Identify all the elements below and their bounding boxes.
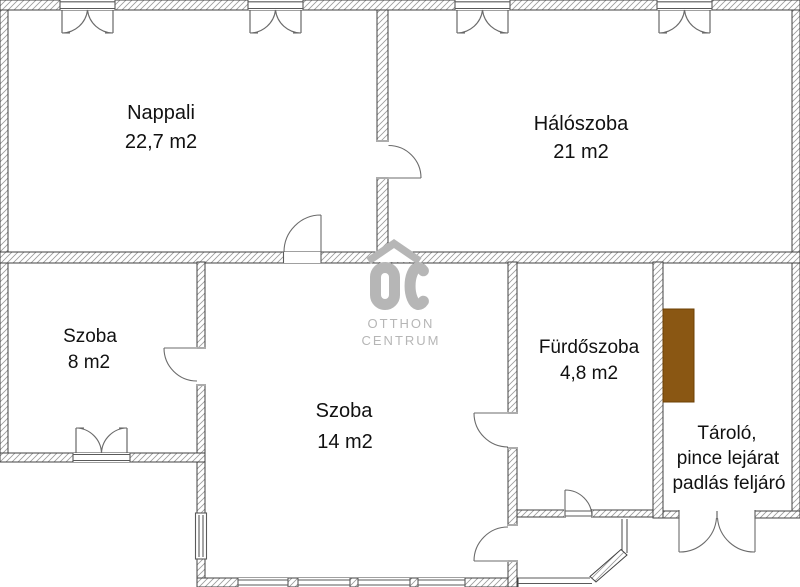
logo-letter-c xyxy=(410,267,423,304)
oc-logo-letters xyxy=(376,267,424,304)
room-area: 21 m2 xyxy=(553,141,609,163)
window-szoba14-bottom-3 xyxy=(358,578,410,587)
opening-furdoszoba-porch-door xyxy=(564,509,593,518)
room-area: 8 m2 xyxy=(68,352,110,373)
floorplan-canvas: OTTHON CENTRUM Nappali 22,7 m2 Hálószoba… xyxy=(0,0,800,587)
room-name-line1: Tároló, xyxy=(697,423,756,444)
porch-right-wall xyxy=(622,519,627,553)
room-label-szoba8: Szoba 8 m2 xyxy=(63,326,117,373)
room-name: Szoba xyxy=(63,326,117,347)
watermark-line1: OTTHON xyxy=(368,316,435,331)
window-haloszoba-1 xyxy=(455,0,510,33)
window-szoba8-bottom xyxy=(73,428,130,462)
porch-chamfer-wall xyxy=(590,550,627,583)
window-haloszoba-2 xyxy=(657,0,712,33)
logo-letter-o xyxy=(376,268,395,305)
room-label-tarolo: Tároló, pince lejárat padlás feljáró xyxy=(672,423,785,494)
opening-haloszoba-door xyxy=(376,140,389,179)
window-szoba14-bottom-1 xyxy=(238,578,288,587)
wall-furdoszoba-tarolo xyxy=(653,262,663,518)
window-nappali-1 xyxy=(60,0,115,33)
room-label-furdoszoba: Fürdőszoba 4,8 m2 xyxy=(539,337,640,384)
porch-entry xyxy=(518,519,627,584)
opening-szoba8-door xyxy=(196,347,206,386)
room-area: 4,8 m2 xyxy=(560,363,618,384)
room-area: 14 m2 xyxy=(317,431,373,453)
porch-bottom-wall xyxy=(518,578,592,584)
window-szoba14-left xyxy=(196,513,207,559)
window-nappali-2 xyxy=(248,0,303,33)
room-name: Hálószoba xyxy=(534,113,629,135)
room-name: Szoba xyxy=(316,400,374,422)
tarolo-stairs-block xyxy=(663,309,694,402)
opening-furdoszoba-door xyxy=(507,412,518,449)
window-szoba14-bottom-2 xyxy=(298,578,350,587)
window-szoba14-bottom-4 xyxy=(418,578,465,587)
wall-exterior-left xyxy=(0,10,8,462)
room-name: Fürdőszoba xyxy=(539,337,640,358)
wall-nappali-haloszoba xyxy=(377,10,388,252)
room-label-nappali: Nappali 22,7 m2 xyxy=(125,102,197,153)
opening-porch-szoba14-door xyxy=(507,524,518,562)
room-label-haloszoba: Hálószoba 21 m2 xyxy=(534,113,629,163)
room-name-line2: pince lejárat xyxy=(677,448,780,469)
room-area: 22,7 m2 xyxy=(125,131,197,153)
floorplan-drawing: OTTHON CENTRUM Nappali 22,7 m2 Hálószoba… xyxy=(0,0,800,587)
watermark-line2: CENTRUM xyxy=(362,333,441,348)
room-name-line3: padlás feljáró xyxy=(672,473,785,494)
room-label-szoba14: Szoba 14 m2 xyxy=(316,400,374,453)
wall-exterior-right xyxy=(792,10,800,518)
room-name: Nappali xyxy=(127,102,195,124)
opening-nappali-door xyxy=(284,252,322,263)
